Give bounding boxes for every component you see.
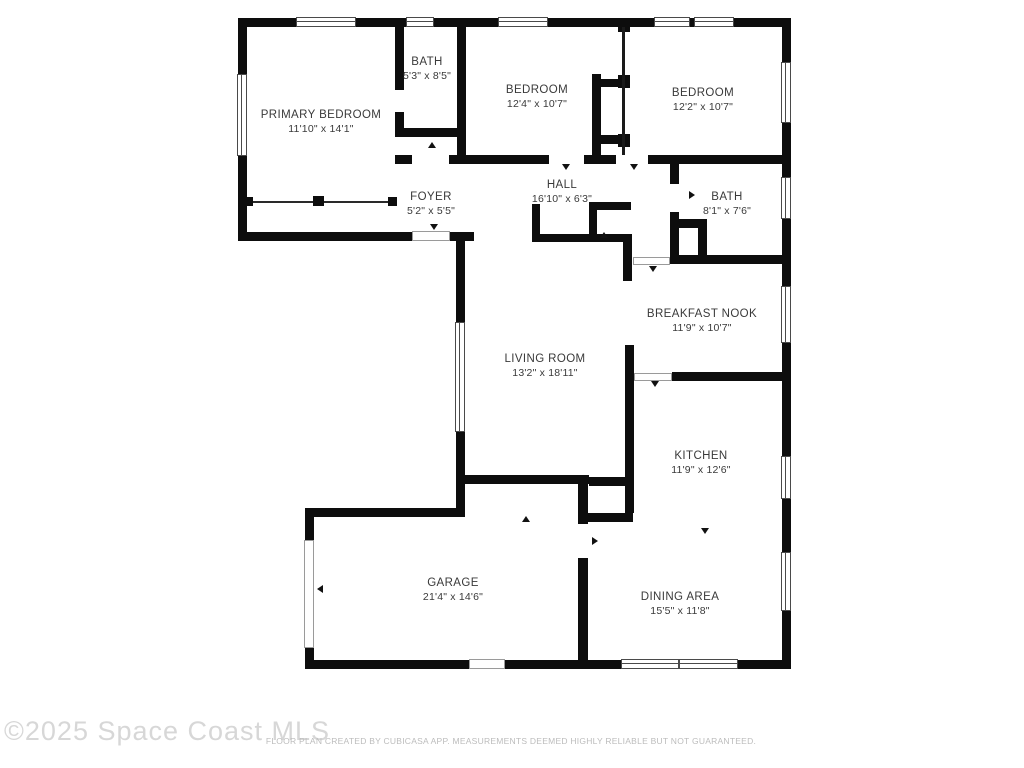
door-swing-tick [428, 142, 436, 148]
room-name: KITCHEN [671, 450, 730, 462]
room-label-garage: GARAGE21'4" x 14'6" [423, 577, 483, 603]
room-dimensions: 5'2" x 5'5" [407, 205, 455, 217]
wall [532, 234, 624, 242]
wall [578, 558, 588, 669]
room-name: DINING AREA [641, 591, 720, 603]
window [654, 17, 690, 27]
floor-plan-page: PRIMARY BEDROOM11'10" x 14'1"BATH5'3" x … [0, 0, 1024, 768]
room-dimensions: 13'2" x 18'11" [504, 367, 585, 379]
wall [305, 508, 314, 540]
closet-door-stop [313, 196, 324, 206]
window [621, 659, 679, 669]
room-name: BEDROOM [672, 87, 734, 99]
door-swing-tick [430, 224, 438, 230]
room-name: HALL [532, 179, 592, 191]
wall [456, 475, 589, 484]
room-dimensions: 11'9" x 10'7" [647, 322, 757, 334]
window [296, 17, 356, 27]
wall [583, 513, 633, 522]
window [679, 659, 738, 669]
floorplan-canvas: PRIMARY BEDROOM11'10" x 14'1"BATH5'3" x … [0, 0, 1024, 768]
room-dimensions: 8'1" x 7'6" [703, 205, 751, 217]
room-label-bedroom-1: BEDROOM12'4" x 10'7" [506, 84, 568, 110]
room-name: LIVING ROOM [504, 353, 585, 365]
wall [305, 508, 465, 517]
room-label-living-room: LIVING ROOM13'2" x 18'11" [504, 353, 585, 379]
door [633, 257, 670, 265]
wall [238, 232, 412, 241]
wall [622, 27, 625, 155]
wall [672, 372, 782, 381]
door [412, 231, 450, 241]
door-swing-tick [689, 191, 695, 199]
wall [456, 430, 465, 512]
door-swing-tick [651, 381, 659, 387]
wall [670, 255, 782, 264]
room-name: BEDROOM [506, 84, 568, 96]
room-name: BREAKFAST NOOK [647, 308, 757, 320]
window [781, 552, 791, 611]
room-label-bath-2: BATH8'1" x 7'6" [703, 191, 751, 217]
wall [592, 74, 601, 161]
wall [589, 202, 631, 210]
room-dimensions: 12'4" x 10'7" [506, 98, 568, 110]
wall [456, 232, 465, 324]
room-dimensions: 21'4" x 14'6" [423, 591, 483, 603]
wall [625, 345, 634, 484]
wall [395, 155, 412, 164]
room-dimensions: 11'10" x 14'1" [261, 123, 382, 135]
room-dimensions: 11'9" x 12'6" [671, 464, 730, 476]
room-name: BATH [703, 191, 751, 203]
wall [623, 234, 632, 281]
window [498, 17, 548, 27]
door [469, 659, 505, 669]
room-name: PRIMARY BEDROOM [261, 109, 382, 121]
disclaimer-text: FLOOR PLAN CREATED BY CUBICASA APP. MEAS… [266, 736, 756, 746]
window [406, 17, 434, 27]
door-swing-tick [649, 266, 657, 272]
wall [305, 660, 469, 669]
room-label-dining-area: DINING AREA15'5" x 11'8" [641, 591, 720, 617]
room-name: BATH [403, 56, 451, 68]
room-label-hall: HALL16'10" x 6'3" [532, 179, 592, 205]
room-name: FOYER [407, 191, 455, 203]
window [781, 177, 791, 219]
room-label-bedroom-2: BEDROOM12'2" x 10'7" [672, 87, 734, 113]
wall [449, 155, 549, 164]
room-label-primary-bedroom: PRIMARY BEDROOM11'10" x 14'1" [261, 109, 382, 135]
room-dimensions: 5'3" x 8'5" [403, 70, 451, 82]
window [781, 62, 791, 123]
door [634, 373, 672, 381]
closet-door-stop [388, 197, 397, 206]
room-label-foyer: FOYER5'2" x 5'5" [407, 191, 455, 217]
wall [457, 26, 466, 163]
window [781, 456, 791, 499]
door-swing-tick [630, 164, 638, 170]
wall [625, 484, 634, 513]
room-label-bath-1: BATH5'3" x 8'5" [403, 56, 451, 82]
room-dimensions: 15'5" x 11'8" [641, 605, 720, 617]
door-swing-tick [562, 164, 570, 170]
room-dimensions: 12'2" x 10'7" [672, 101, 734, 113]
closet-door-stop [244, 197, 253, 206]
door-swing-tick [592, 537, 598, 545]
wall [395, 128, 465, 137]
wall [648, 155, 782, 164]
wall [670, 219, 707, 228]
room-label-kitchen: KITCHEN11'9" x 12'6" [671, 450, 730, 476]
door-swing-tick [701, 528, 709, 534]
room-label-breakfast-nook: BREAKFAST NOOK11'9" x 10'7" [647, 308, 757, 334]
wall [670, 157, 679, 184]
window [237, 74, 247, 156]
door [304, 540, 314, 648]
door-swing-tick [600, 232, 608, 238]
door-swing-tick [317, 585, 323, 593]
window [781, 286, 791, 343]
wall [578, 475, 588, 524]
door-swing-tick [522, 516, 530, 522]
window [694, 17, 734, 27]
room-name: GARAGE [423, 577, 483, 589]
room-dimensions: 16'10" x 6'3" [532, 193, 592, 205]
window [455, 322, 465, 432]
